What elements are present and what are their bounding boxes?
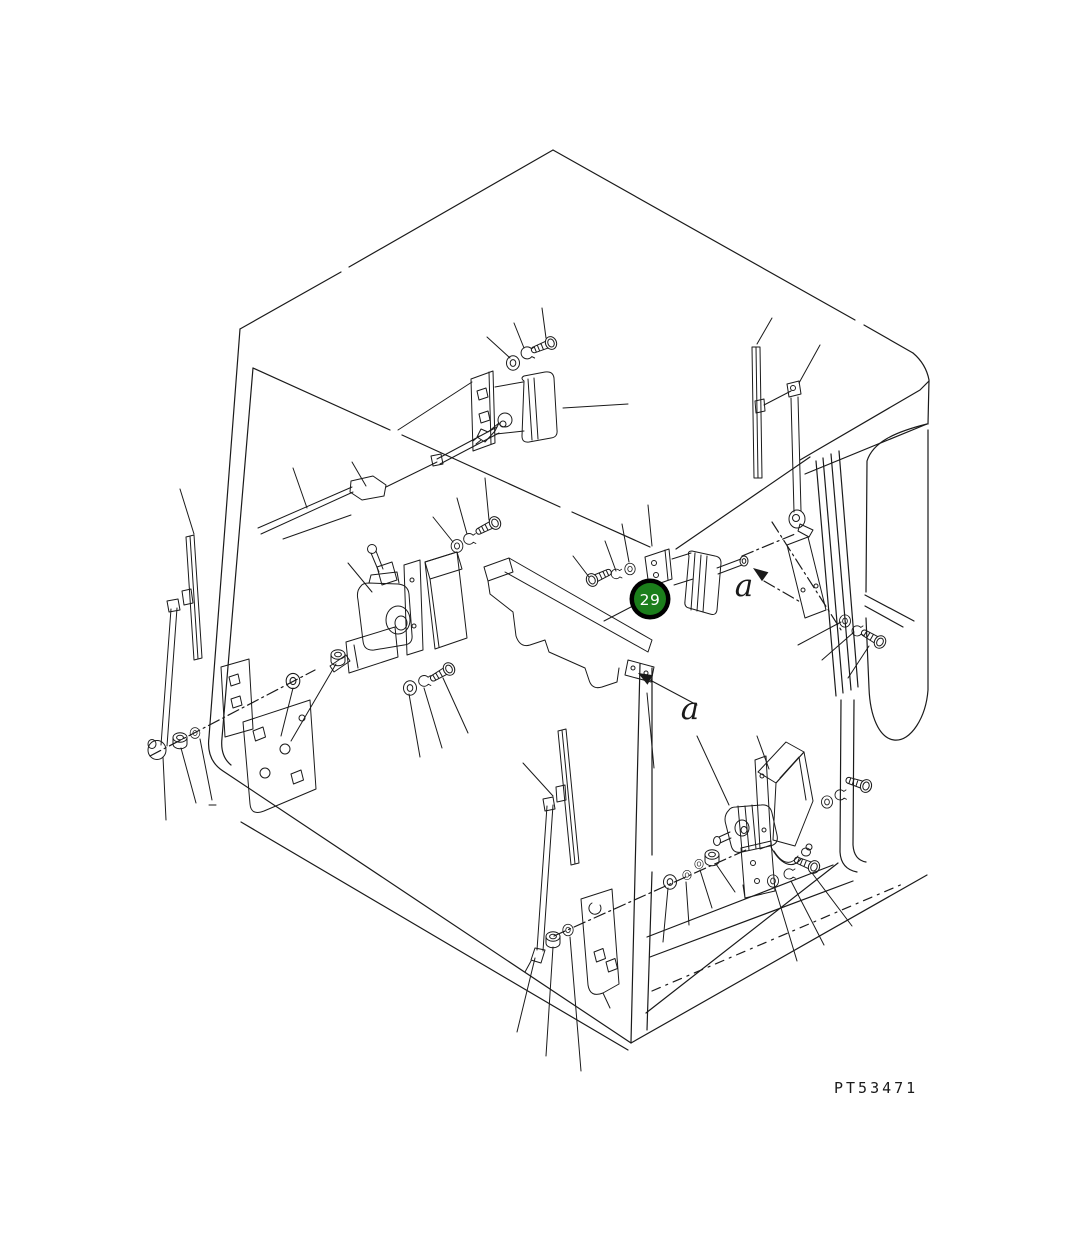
door-hinge-plates [221, 659, 316, 812]
stowed-wiper-arm [258, 427, 499, 539]
arm-storage-tray [484, 558, 654, 688]
ref-label-a-upper: a [735, 568, 753, 604]
center-motor-fasteners [331, 515, 503, 695]
reference-arrow-upper [753, 568, 768, 581]
exploded-parts-diagram: a a PT53471 29 [0, 0, 1078, 1246]
right-wiper-arm [787, 381, 813, 537]
top-wiper-motor [471, 371, 557, 451]
center-wiper-motor [330, 545, 467, 674]
lower-wiper-arm [525, 797, 555, 972]
callout-number[interactable]: 29 [640, 591, 661, 609]
left-wiper-arm [148, 599, 180, 760]
diagram-page: a a PT53471 29 [0, 0, 1078, 1246]
right-wiper-blade [752, 347, 791, 478]
lower-arm-fasteners [546, 924, 573, 948]
lower-wiper-blade [556, 729, 579, 865]
ref-label-a-lower: a [681, 691, 699, 727]
cab-wireframe [209, 150, 929, 1050]
left-wiper-blade [182, 535, 202, 660]
drawing-code: PT53471 [834, 1079, 918, 1097]
lower-right-wiper-motor [714, 742, 814, 898]
leader-lines [163, 308, 869, 1071]
center-right-motor-fasteners [584, 563, 635, 588]
right-mounting-plate [787, 537, 826, 618]
lower-bracket-plate [581, 889, 619, 1008]
top-motor-fasteners [507, 335, 559, 370]
callout-29[interactable]: 29 [630, 579, 671, 620]
